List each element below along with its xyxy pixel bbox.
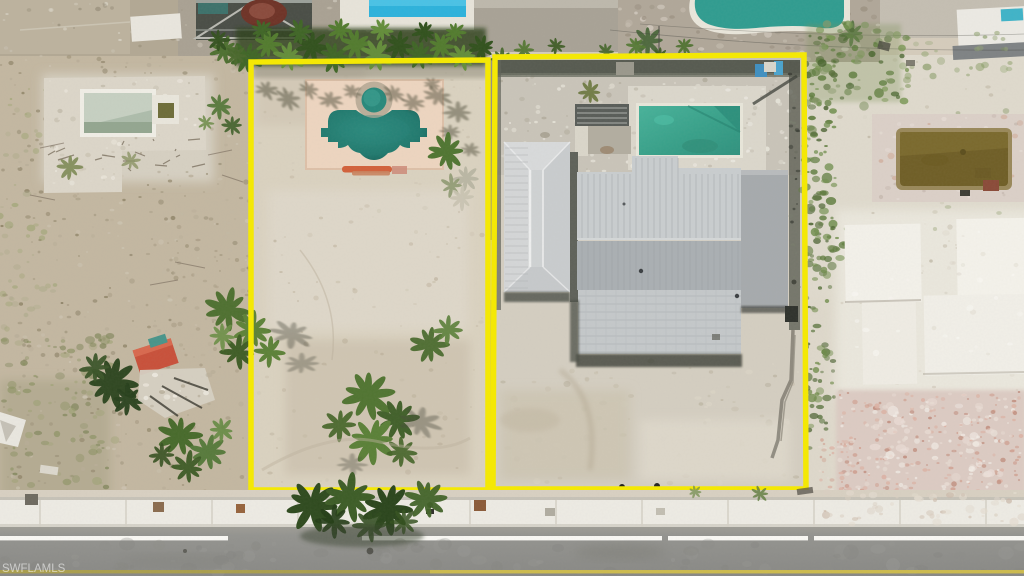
svg-text:SWFLAMLS: SWFLAMLS xyxy=(2,563,66,575)
